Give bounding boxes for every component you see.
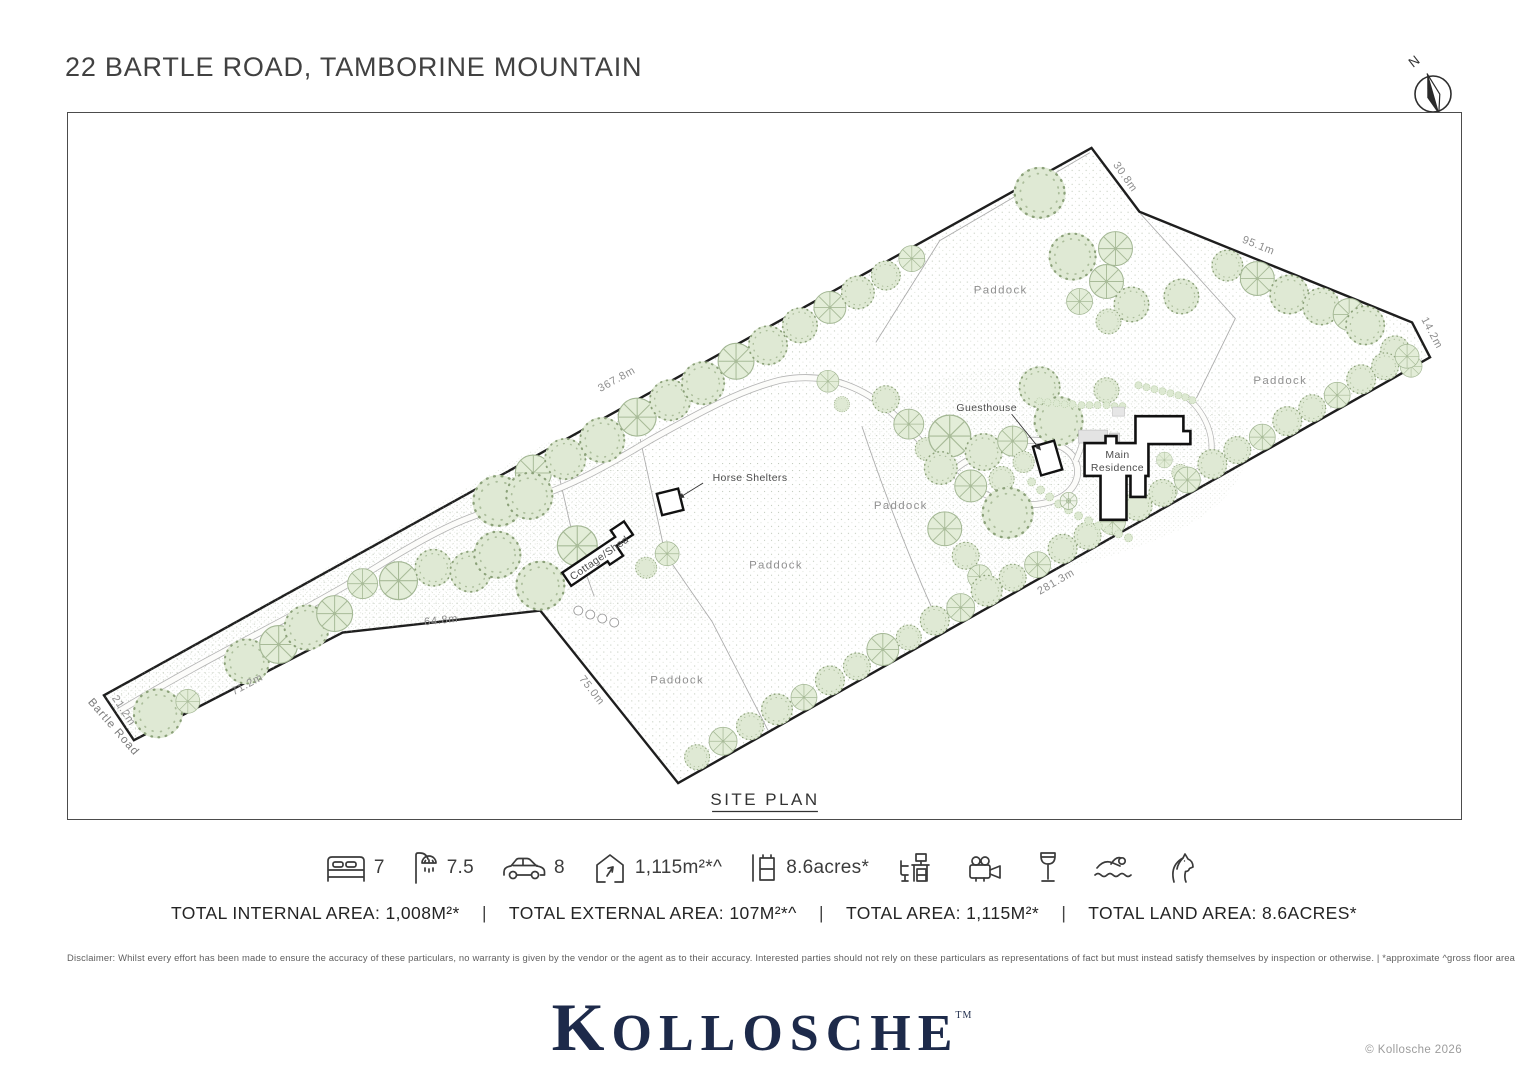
main-residence-label-line1: Main	[1105, 450, 1129, 461]
bed-icon	[325, 853, 367, 883]
totals-separator: |	[482, 903, 487, 923]
car-icon	[501, 855, 547, 881]
feature-cars: 8	[501, 855, 565, 881]
footer-logo-wrap: KOLLOSCHETM	[0, 990, 1528, 1065]
site-plan-frame: 367.8m 30.8m 95.1m 14.2m 281.3m 75.0m 64…	[67, 112, 1462, 820]
feature-horse	[1168, 852, 1203, 884]
total-external-area: TOTAL EXTERNAL AREA: 107M²*^	[509, 903, 797, 923]
kollosche-logo: KOLLOSCHE	[552, 990, 960, 1065]
north-arrow: N	[1396, 48, 1466, 122]
paddock-label-bottom: Paddock	[650, 674, 704, 686]
paddock-label-top: Paddock	[974, 284, 1028, 296]
paddock-label-center-left: Paddock	[749, 560, 803, 572]
feature-office	[896, 851, 939, 885]
totals-separator: |	[1061, 903, 1066, 923]
horse-icon	[1168, 852, 1196, 884]
total-area: TOTAL AREA: 1,115M²*	[846, 903, 1039, 923]
feature-wine	[1038, 851, 1065, 885]
beds-value: 7	[374, 857, 385, 879]
horse-shelters-label: Horse Shelters	[713, 473, 788, 484]
cars-value: 8	[554, 857, 565, 879]
feature-baths: 7.5	[412, 851, 474, 885]
disclaimer-text: Disclaimer: Whilst every effort has been…	[67, 952, 1515, 963]
feature-land-area: 8.6acres*	[749, 852, 869, 884]
totals-row: TOTAL INTERNAL AREA: 1,008M²* | TOTAL EX…	[0, 903, 1528, 924]
feature-floor-area: 1,115m²*^	[592, 852, 722, 884]
baths-value: 7.5	[447, 857, 474, 879]
total-land-area: TOTAL LAND AREA: 8.6ACRES*	[1088, 903, 1357, 923]
fountain	[1060, 492, 1077, 509]
guesthouse-label: Guesthouse	[956, 403, 1016, 414]
horse-shelter-building	[657, 489, 684, 516]
wine-icon	[1038, 851, 1058, 885]
paddock-label-right: Paddock	[1253, 375, 1307, 387]
feature-cinema	[966, 854, 1011, 882]
main-residence-label-line2: Residence	[1091, 463, 1144, 474]
dim-64-8m: 64.8m	[424, 613, 459, 628]
copyright-text: © Kollosche 2026	[1365, 1044, 1462, 1056]
cinema-icon	[966, 854, 1004, 882]
features-row: 7 7.5 8 1,115m²*^ 8.6acres*	[0, 845, 1528, 891]
north-label: N	[1406, 53, 1423, 71]
land-area-value: 8.6acres*	[786, 857, 869, 879]
property-boundary	[104, 148, 1430, 783]
bath-icon	[412, 851, 440, 885]
floor-area-icon	[592, 852, 628, 884]
site-plan-caption: SITE PLAN	[710, 790, 819, 809]
paddock-label-center: Paddock	[874, 500, 928, 512]
trademark-symbol: TM	[955, 1010, 972, 1021]
totals-separator: |	[819, 903, 824, 923]
dim-367-8m: 367.8m	[596, 364, 638, 394]
feature-pool	[1092, 855, 1141, 881]
floor-area-value: 1,115m²*^	[635, 857, 722, 879]
office-icon	[896, 851, 932, 885]
total-internal-area: TOTAL INTERNAL AREA: 1,008M²*	[171, 903, 460, 923]
feature-beds: 7	[325, 853, 385, 883]
land-area-icon	[749, 852, 779, 884]
page-title: 22 BARTLE ROAD, TAMBORINE MOUNTAIN	[65, 52, 642, 83]
pool-icon	[1092, 855, 1134, 881]
site-plan-drawing: 367.8m 30.8m 95.1m 14.2m 281.3m 75.0m 64…	[68, 113, 1461, 819]
